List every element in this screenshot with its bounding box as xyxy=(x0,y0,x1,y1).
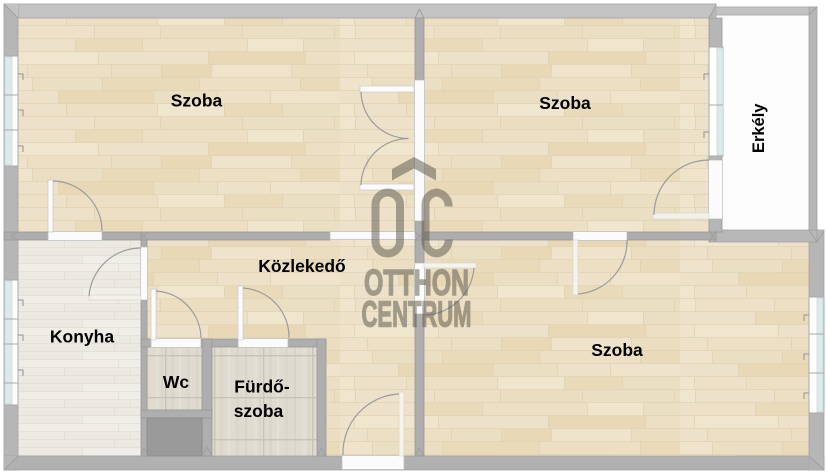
svg-text:Wc: Wc xyxy=(163,372,190,392)
svg-text:Szoba: Szoba xyxy=(591,340,643,360)
svg-text:Konyha: Konyha xyxy=(50,327,114,347)
svg-text:szoba: szoba xyxy=(234,401,284,421)
svg-text:CENTRUM: CENTRUM xyxy=(362,294,472,335)
svg-text:Közlekedő: Közlekedő xyxy=(258,256,346,276)
svg-text:Fürdő-: Fürdő- xyxy=(234,377,290,397)
svg-text:Szoba: Szoba xyxy=(539,93,591,113)
svg-text:Erkély: Erkély xyxy=(750,103,768,153)
svg-text:Szoba: Szoba xyxy=(171,91,223,111)
